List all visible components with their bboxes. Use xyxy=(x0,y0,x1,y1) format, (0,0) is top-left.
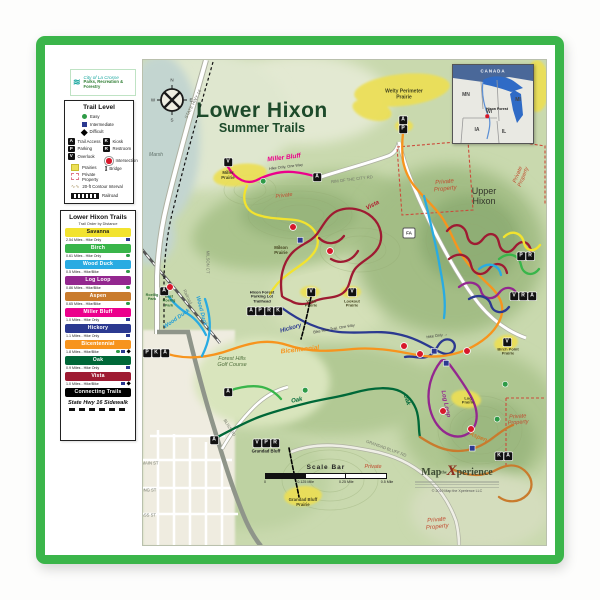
legend-level-row: Intermediate xyxy=(82,121,130,129)
trail-level-icons xyxy=(115,350,130,354)
scale-tick-label: 0.25 Mile xyxy=(339,480,354,484)
crossed-poles-x-icon: X xyxy=(447,463,457,479)
trail-detail-row: 1.0 Miles - Hike/Bike xyxy=(65,381,131,387)
locator-inset-map: CANADA Hixon Forest MNWIMIIAIL xyxy=(452,64,534,144)
private-property-label: Private Property xyxy=(82,172,111,182)
map-point-marker-A: A xyxy=(399,116,407,124)
square-level-icon xyxy=(126,366,130,370)
map-point-marker-K: K xyxy=(274,307,282,315)
intersection-marker-icon xyxy=(290,224,296,230)
circle-level-icon xyxy=(126,302,130,306)
circle-trail-marker-icon xyxy=(503,382,508,387)
legend-level-row: Easy xyxy=(82,113,130,121)
circle-trail-marker-icon xyxy=(303,388,308,393)
trail-level-icons xyxy=(125,286,130,290)
trail-level-icons xyxy=(125,334,130,338)
map-label: Upper Hixon xyxy=(472,186,497,206)
map-label: Vista Prairie xyxy=(305,300,317,309)
map-area: Lower Hixon Summer Trails STATE HWY 16NE… xyxy=(143,60,546,545)
map-label: Log Prairie xyxy=(462,397,474,406)
sidewalk-dash-icon xyxy=(69,408,127,412)
legend-row-prairies: Prairies xyxy=(71,164,101,172)
square-trail-marker-icon xyxy=(470,446,475,451)
legend-symbol-row: RRestroom xyxy=(103,145,131,153)
map-label: CASS ST xyxy=(143,514,156,519)
map-point-marker-A: A xyxy=(528,292,536,300)
trail-name-bar: Wood Duck xyxy=(65,260,131,269)
trail-detail-row: 0.65 Miles - Hike/Bike xyxy=(65,301,131,307)
trails-legend-title: Lower Hixon Trails xyxy=(65,214,131,221)
map-label: KING ST xyxy=(143,489,156,494)
legend-level-label: Easy xyxy=(90,114,100,119)
prairie-swatch-icon xyxy=(71,164,79,171)
map-point-marker-V: V xyxy=(253,439,261,447)
legend-row-intersection: Intersection xyxy=(105,157,133,165)
logo-dept-line: Parks, Recreation & Forestry xyxy=(84,80,133,90)
legend-level-row: Difficult xyxy=(82,128,130,136)
inset-canvas xyxy=(453,65,533,143)
trail-detail-text: 0.5 Miles - Hike/Bike xyxy=(66,270,99,274)
intersection-marker-icon xyxy=(327,248,333,254)
connecting-trails-bar: Connecting Trails xyxy=(65,388,131,397)
intersection-label: Intersection xyxy=(116,158,138,163)
trail-detail-text: 1.8 Miles - Hike/Bike xyxy=(66,350,99,354)
map-label: Miller Prairie xyxy=(221,171,234,181)
trails-legend: Lower Hixon Trails Trail Order by Distan… xyxy=(60,210,136,441)
map-label: Forest Hills Golf Course xyxy=(217,356,246,368)
intersection-icon xyxy=(105,157,113,165)
railroad-label: Railroad xyxy=(102,193,118,198)
map-point-marker-A: A xyxy=(161,349,169,357)
trail-detail-text: 0.65 Miles - Hike/Bike xyxy=(66,302,101,306)
trail-level-icons xyxy=(125,254,130,258)
map-point-marker-A: A xyxy=(247,307,255,315)
inset-state-label-WI: WI xyxy=(486,109,492,115)
trail-name-bar: Savanna xyxy=(65,228,131,237)
sidewalk-label: State Hwy 16 Sidewalk xyxy=(65,400,131,406)
map-point-marker-P: P xyxy=(262,439,270,447)
parking-icon: P xyxy=(68,146,75,153)
map-label: Private Property xyxy=(507,413,529,427)
map-label: East Roellig Park xyxy=(163,295,176,308)
copyright-text: © 2019 Map the Xperience LLC xyxy=(409,489,505,493)
intersection-marker-icon xyxy=(417,351,423,357)
map-point-marker-R: R xyxy=(265,307,273,315)
private-property-swatch-icon xyxy=(71,173,79,180)
map-label: Hixon Forest Parking Lot Trailhead xyxy=(250,290,274,303)
legend-symbol-row: KKiosk xyxy=(103,138,131,146)
intersection-marker-icon xyxy=(464,348,470,354)
legend-symbol-label: Overlook xyxy=(78,154,95,159)
map-point-marker-P: P xyxy=(517,252,525,260)
trail-detail-row: 0.61 Miles - Hike Only xyxy=(65,253,131,259)
trail-detail-text: 0.86 Miles - Hike/Bike xyxy=(66,286,101,290)
legend-symbol-row: VOverlook xyxy=(68,153,103,161)
square-level-icon xyxy=(82,122,87,127)
trail-name-bar: Hickory xyxy=(65,324,131,333)
map-label: Roellig Park xyxy=(146,293,159,302)
map-point-marker-V: V xyxy=(307,288,315,296)
trail-name-bar: Log Loop xyxy=(65,276,131,285)
map-label: Birch Point Prairie xyxy=(497,348,518,357)
map-point-marker-V: V xyxy=(224,158,232,166)
map-label: Private Property xyxy=(433,178,457,194)
prairies-label: Prairies xyxy=(82,165,97,170)
legend-level-label: Difficult xyxy=(90,129,104,134)
map-point-marker-V: V xyxy=(503,338,511,346)
map-label: Grandad Bluff xyxy=(252,450,281,455)
intersection-marker-icon xyxy=(167,284,173,290)
trail-level-legend: Trail Level EasyIntermediateDifficult AT… xyxy=(64,100,134,204)
overlook-icon: V xyxy=(68,153,75,160)
intersection-marker-icon xyxy=(401,343,407,349)
square-trail-marker-icon xyxy=(298,238,303,243)
trail-level-icons xyxy=(125,238,130,242)
scale-tick-label: 0.125 Mile xyxy=(297,480,314,484)
contour-line-icon: ∿∿ xyxy=(71,185,79,189)
map-point-marker-R: R xyxy=(526,252,534,260)
map-label: Milson Prairie xyxy=(274,246,288,256)
trail-detail-text: 1.0 Miles - Hike/Bike xyxy=(66,382,99,386)
square-level-icon xyxy=(121,350,125,354)
diamond-level-icon xyxy=(126,381,131,386)
square-trail-marker-icon xyxy=(432,349,437,354)
map-label: Lookout Prairie xyxy=(344,300,360,309)
circle-level-icon xyxy=(126,286,130,290)
map-label: S xyxy=(170,117,173,122)
scale-tick-label: 0 xyxy=(264,480,266,484)
legend-row-contour: ∿∿ 20-ft Contour Interval xyxy=(71,183,129,191)
intersection-marker-icon xyxy=(440,408,446,414)
trail-level-icons xyxy=(125,270,130,274)
wave-logo-icon: ≋ xyxy=(73,78,81,87)
map-point-marker-R: R xyxy=(519,292,527,300)
trail-level-icons xyxy=(120,382,130,386)
disclaimer-text-lines xyxy=(415,481,499,488)
map-subtitle: Summer Trails xyxy=(196,121,328,135)
map-label: W xyxy=(151,97,155,102)
trail-name-bar: Bicentennial xyxy=(65,340,131,349)
square-trail-marker-icon xyxy=(444,361,449,366)
map-label: MAIN ST xyxy=(143,462,158,467)
legend-symbol-row: PParking xyxy=(68,145,103,153)
restroom-icon: R xyxy=(103,146,110,153)
map-point-marker-A: A xyxy=(210,436,218,444)
trail-access-icon: A xyxy=(68,138,75,145)
square-level-icon xyxy=(126,318,130,322)
trail-detail-text: 0.9 Miles - Hike Only xyxy=(66,366,99,370)
trail-name-bar: Oak xyxy=(65,356,131,365)
map-label: Marsh xyxy=(149,153,163,159)
trail-detail-row: 1.0 Miles - Hike Only xyxy=(65,317,131,323)
map-point-marker-A: A xyxy=(224,388,232,396)
scale-tick-label: 0.5 Mile xyxy=(381,480,394,484)
map-point-marker-K: K xyxy=(495,452,503,460)
city-logo-box: ≋ City of La Crosse Parks, Recreation & … xyxy=(70,69,136,96)
map-point-marker-P: P xyxy=(143,349,151,357)
poster: ≋ City of La Crosse Parks, Recreation & … xyxy=(0,0,600,600)
trail-name-bar: Vista xyxy=(65,372,131,381)
circle-level-icon xyxy=(82,114,87,119)
inset-state-label-MI: MI xyxy=(515,97,521,103)
circle-trail-marker-icon xyxy=(495,417,500,422)
inset-state-label-IA: IA xyxy=(475,127,480,133)
bridge-label: Bridge xyxy=(109,166,121,171)
legend-symbol-label: Restroom xyxy=(113,146,132,151)
map-point-marker-R: R xyxy=(271,439,279,447)
trail-detail-text: 0.61 Miles - Hike Only xyxy=(66,254,101,258)
trail-detail-row: 0.9 Miles - Hike Only xyxy=(65,365,131,371)
trail-detail-row: 0.86 Miles - Hike/Bike xyxy=(65,285,131,291)
kiosk-icon: K xyxy=(103,138,110,145)
map-point-marker-A: A xyxy=(504,452,512,460)
map-point-marker-V: V xyxy=(348,288,356,296)
trail-level-rows: EasyIntermediateDifficult xyxy=(68,113,130,136)
legend-level-label: Intermediate xyxy=(90,122,114,127)
legend-symbol-label: Trail Access xyxy=(78,139,101,144)
square-level-icon xyxy=(121,382,125,386)
legend-row-private: Private Property xyxy=(71,173,111,181)
intersection-marker-icon xyxy=(468,426,474,432)
legend-symbol-row: ATrail Access xyxy=(68,138,103,146)
trail-level-icons xyxy=(125,318,130,322)
publisher-credit: MaptheXperience © 2019 Map the Xperience… xyxy=(409,464,505,493)
circle-level-icon xyxy=(126,270,130,274)
legend-symbol-label: Kiosk xyxy=(113,139,124,144)
trail-detail-text: 2.54 Miles - Hike Only xyxy=(66,238,101,242)
circle-level-icon xyxy=(126,254,130,258)
diamond-level-icon xyxy=(81,129,87,135)
inset-country-label: CANADA xyxy=(480,69,505,74)
square-level-icon xyxy=(126,238,130,242)
inset-state-label-MN: MN xyxy=(462,92,470,98)
trail-level-icons xyxy=(125,366,130,370)
county-road-shield: FA xyxy=(403,228,416,239)
map-label: Grandad Bluff Prairie xyxy=(289,498,318,508)
maps-xperience-logo: MaptheXperience xyxy=(409,464,505,479)
trails-legend-subtitle: Trail Order by Distance xyxy=(65,222,131,226)
circle-level-icon xyxy=(116,350,120,354)
trail-detail-row: 1.8 Miles - Hike/Bike xyxy=(65,349,131,355)
trail-name-bar: Miller Bluff xyxy=(65,308,131,317)
map-label: Welty Perimeter Prairie xyxy=(385,89,423,100)
inset-state-label-IL: IL xyxy=(502,129,506,135)
trail-level-title: Trail Level xyxy=(68,104,130,111)
railroad-swatch-icon xyxy=(71,193,99,199)
map-point-marker-P: P xyxy=(256,307,264,315)
scale-bar-label: Scale Bar xyxy=(265,464,387,471)
trail-detail-text: 1.0 Miles - Hike Only xyxy=(66,318,99,322)
trail-level-icons xyxy=(125,302,130,306)
trail-name-bar: Aspen xyxy=(65,292,131,301)
circle-trail-marker-icon xyxy=(261,179,266,184)
diamond-level-icon xyxy=(126,349,131,354)
map-label: Private Property xyxy=(425,516,449,532)
trail-detail-row: 2.54 Miles - Hike Only xyxy=(65,237,131,243)
square-level-icon xyxy=(126,334,130,338)
map-label: E xyxy=(189,97,192,102)
scale-bar: Scale Bar 00.125 Mile0.25 Mile0.5 Mile xyxy=(265,464,387,485)
map-title: Lower Hixon xyxy=(196,100,328,121)
map-point-marker-A: A xyxy=(313,173,321,181)
map-label: MILSON CT xyxy=(205,251,210,274)
trail-detail-row: 0.5 Miles - Hike/Bike xyxy=(65,269,131,275)
legend-symbol-label: Parking xyxy=(78,146,93,151)
map-point-marker-K: K xyxy=(152,349,160,357)
legend-row-railroad: Railroad xyxy=(71,192,129,200)
map-point-marker-V: V xyxy=(510,292,518,300)
map-title-block: Lower Hixon Summer Trails xyxy=(196,100,328,135)
trail-detail-text: 1.1 Miles - Hike Only xyxy=(66,334,99,338)
trail-name-bar: Birch xyxy=(65,244,131,253)
contour-label: 20-ft Contour Interval xyxy=(82,184,122,189)
map-label: N xyxy=(170,77,173,82)
trail-detail-row: 1.1 Miles - Hike Only xyxy=(65,333,131,339)
map-point-marker-P: P xyxy=(399,125,407,133)
